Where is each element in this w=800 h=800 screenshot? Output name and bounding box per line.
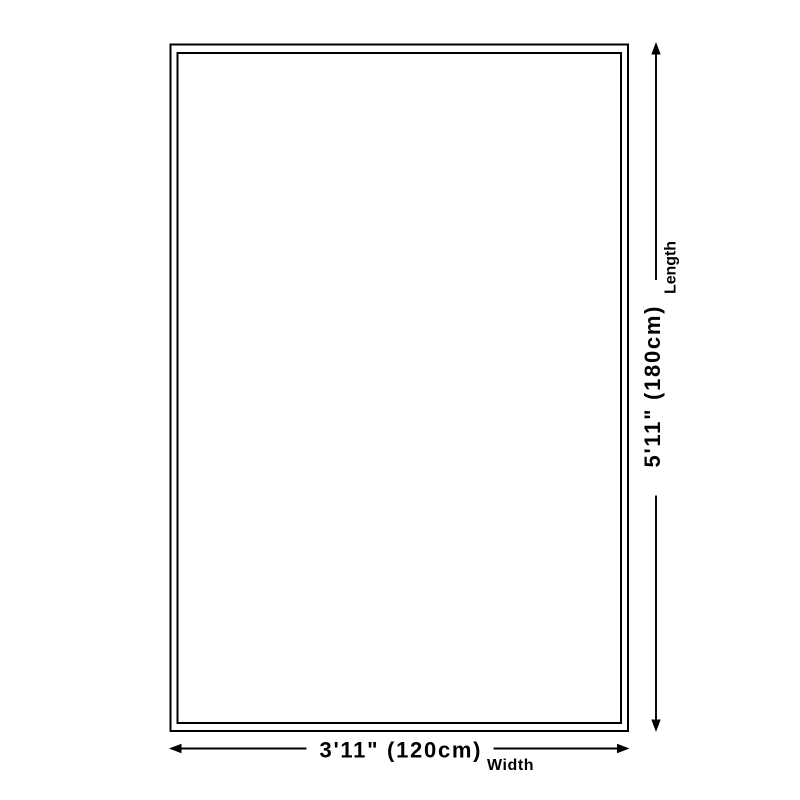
svg-text:5'11" (180cm): 5'11" (180cm) xyxy=(640,307,665,468)
svg-text:Length: Length xyxy=(663,241,680,294)
svg-text:3'11" (120cm): 3'11" (120cm) xyxy=(320,738,481,763)
svg-text:Width: Width xyxy=(487,757,534,774)
